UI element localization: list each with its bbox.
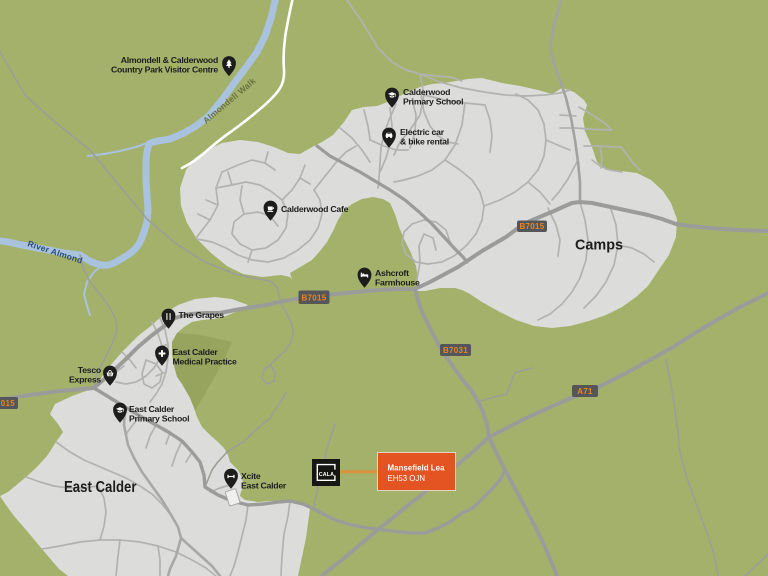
svg-text:B7015: B7015 (301, 294, 326, 303)
svg-text:A71: A71 (577, 387, 593, 396)
svg-text:Calderwood Cafe: Calderwood Cafe (281, 204, 349, 214)
svg-text:Mansefield Lea: Mansefield Lea (388, 462, 445, 472)
svg-text:Xcite: Xcite (241, 471, 261, 481)
svg-text:B7031: B7031 (443, 346, 468, 355)
svg-text:The Grapes: The Grapes (179, 310, 225, 320)
svg-text:East Calder: East Calder (173, 347, 219, 357)
svg-text:Medical Practice: Medical Practice (173, 357, 238, 367)
svg-text:B7015: B7015 (0, 399, 15, 408)
svg-text:& bike rental: & bike rental (400, 137, 449, 147)
svg-text:Electric car: Electric car (400, 127, 445, 137)
svg-text:Express: Express (69, 375, 101, 385)
svg-text:EH53 OJN: EH53 OJN (388, 473, 426, 483)
svg-text:Almondell & Calderwood: Almondell & Calderwood (121, 55, 218, 65)
svg-text:Camps: Camps (575, 237, 623, 254)
svg-text:Tesco: Tesco (78, 365, 101, 375)
svg-text:Calderwood: Calderwood (403, 87, 450, 97)
svg-text:East Calder: East Calder (241, 481, 287, 491)
svg-text:East Calder: East Calder (129, 404, 175, 414)
svg-text:East Calder: East Calder (64, 479, 137, 496)
svg-text:CALA: CALA (319, 472, 334, 478)
svg-text:B7015: B7015 (519, 222, 544, 231)
svg-text:Ashcroft: Ashcroft (375, 268, 409, 278)
svg-text:Primary School: Primary School (129, 414, 189, 424)
svg-text:Country Park Visitor Centre: Country Park Visitor Centre (111, 65, 218, 75)
svg-text:Primary School: Primary School (403, 97, 463, 107)
svg-text:Farmhouse: Farmhouse (375, 278, 420, 288)
